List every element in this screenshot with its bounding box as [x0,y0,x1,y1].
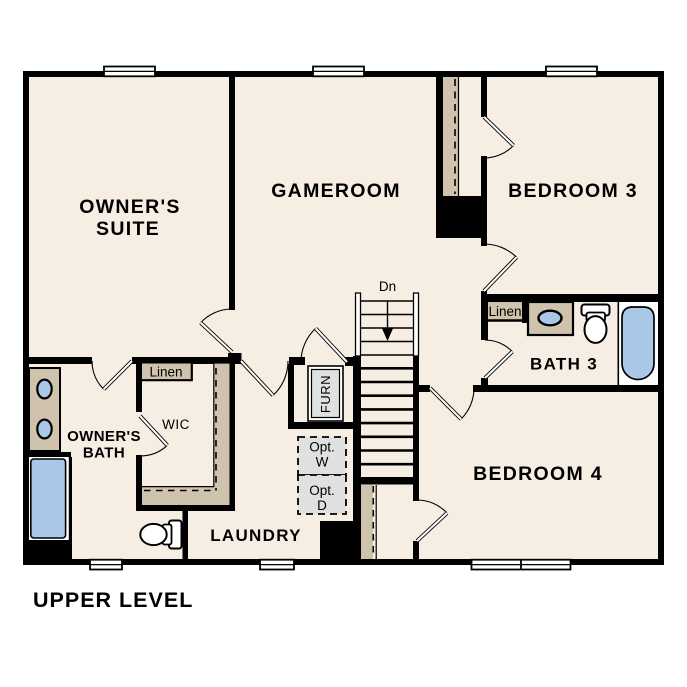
svg-text:UPPER LEVEL: UPPER LEVEL [33,588,193,612]
svg-text:Opt.: Opt. [309,440,335,455]
svg-text:Linen: Linen [488,304,521,319]
svg-text:BATH 3: BATH 3 [530,355,598,374]
svg-text:SUITE: SUITE [96,218,160,240]
svg-text:OWNER'S: OWNER'S [79,196,181,218]
svg-text:BEDROOM 4: BEDROOM 4 [473,463,603,485]
svg-text:Dn: Dn [379,279,396,294]
svg-text:OWNER'S: OWNER'S [67,428,141,445]
svg-text:BATH: BATH [83,445,125,462]
svg-text:D: D [317,498,327,513]
svg-text:Linen: Linen [149,365,182,380]
svg-text:GAMEROOM: GAMEROOM [271,180,401,202]
svg-text:WIC: WIC [162,417,190,432]
svg-text:W: W [316,455,329,470]
svg-text:FURN: FURN [318,375,333,413]
svg-text:Opt.: Opt. [309,483,335,498]
svg-text:BEDROOM 3: BEDROOM 3 [508,180,638,202]
svg-text:LAUNDRY: LAUNDRY [210,526,302,545]
